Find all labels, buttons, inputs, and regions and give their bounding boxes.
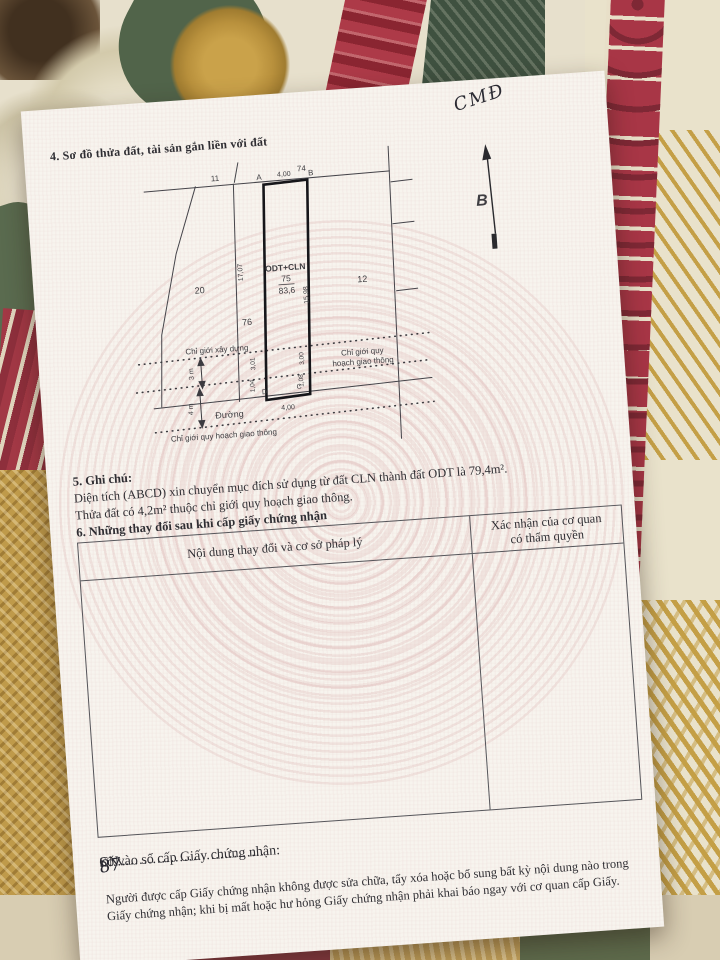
seg-left-upper-dim: 3,01 [249, 357, 257, 370]
construction-boundary-label: Chỉ giới xây dựng [185, 343, 249, 356]
seg-right-upper-dim: 3,00 [298, 351, 306, 364]
serial-number-line: Số vào sổ cấp Giấy chứng nhận:..CN......… [99, 854, 122, 875]
changes-table: Nội dung thay đổi và cơ sở pháp lý Xác n… [77, 504, 642, 837]
corner-c-label: C [296, 384, 302, 391]
planning-boundary-bottom-label: Chỉ giới quy hoạch giao thông [171, 427, 278, 443]
cadastral-sketch: B 11 74 20 76 12 A 4,00 B ODT+CLN 75 83,… [87, 132, 577, 464]
empty-confirmation-cell [473, 543, 641, 809]
column-header-content-label: Nội dung thay đổi và cơ sở pháp lý [187, 535, 363, 562]
setback-dimension-arrows [194, 358, 208, 427]
land-use-code: ODT+CLN [265, 261, 306, 274]
seg-left-lower-dim: 1,04 [249, 379, 257, 392]
photo-of-certificate: 4. Sơ đồ thửa đất, tài sản gắn liền với … [0, 0, 720, 960]
planning-dotted-lines [134, 332, 435, 433]
certificate-page: 4. Sơ đồ thửa đất, tài sản gắn liền với … [21, 71, 664, 960]
handwritten-serial-number: 87 [98, 854, 123, 877]
parcel-12-label: 12 [357, 274, 368, 285]
corner-d-label: D [262, 389, 268, 396]
corner-a-label: A [256, 173, 263, 182]
plot-area: 83,6 [278, 285, 295, 296]
empty-content-cell [81, 554, 491, 837]
parcel-11-label: 11 [210, 174, 219, 184]
parcel-74-label: 74 [297, 164, 307, 174]
parcel-20-label: 20 [194, 285, 205, 296]
edge-top-dim: 4,00 [277, 171, 291, 179]
corner-b-label: B [308, 168, 314, 177]
parcel-76-label: 76 [242, 317, 253, 328]
north-arrow: B [472, 144, 497, 250]
road-label: Đường [215, 409, 244, 421]
setback-3m-label: 3 m [188, 368, 196, 380]
edge-left-dim: 17,07 [237, 263, 245, 281]
edge-right-dim: 15,98 [303, 286, 311, 304]
plot-number: 75 [281, 273, 291, 284]
north-label: B [476, 192, 489, 210]
setback-4m-label: 4 m [188, 403, 196, 415]
edge-bottom-dim: 4,00 [281, 404, 295, 412]
changes-table-body [81, 543, 642, 836]
